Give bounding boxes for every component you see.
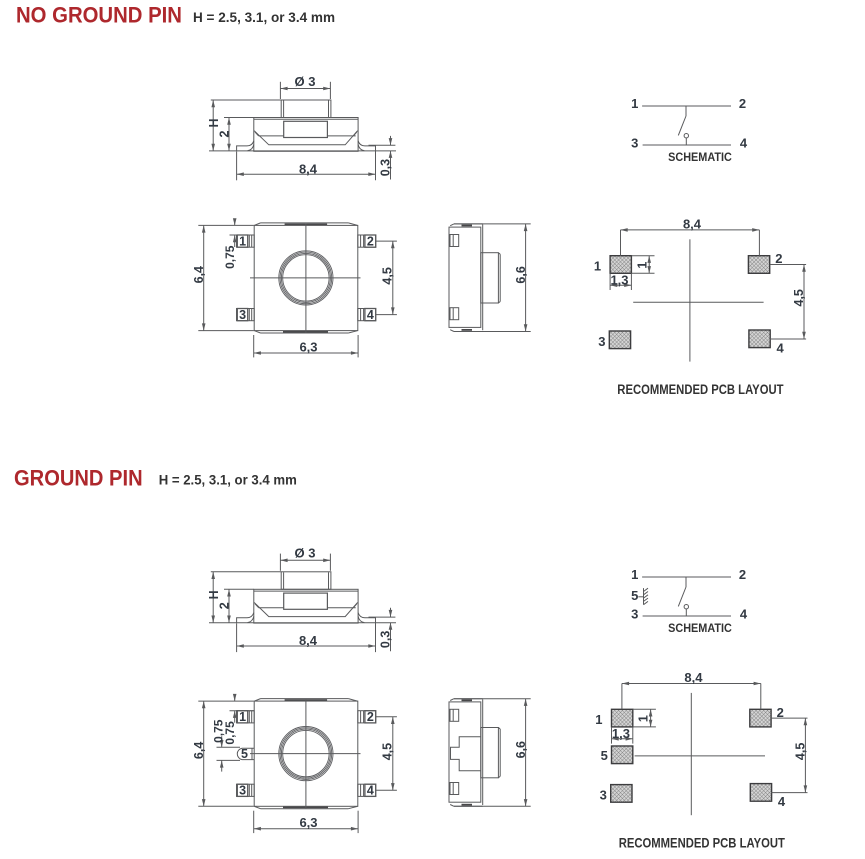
- svg-text:2: 2: [367, 710, 374, 724]
- svg-text:3: 3: [600, 787, 607, 802]
- svg-text:8,4: 8,4: [299, 161, 318, 176]
- svg-text:1,3: 1,3: [610, 273, 628, 288]
- svg-text:4,5: 4,5: [381, 267, 395, 284]
- svg-text:RECOMMENDED PCB LAYOUT: RECOMMENDED PCB LAYOUT: [617, 382, 784, 397]
- svg-text:H: H: [207, 118, 221, 127]
- svg-text:3: 3: [631, 135, 638, 150]
- svg-text:H = 2.5, 3.1, or 3.4 mm: H = 2.5, 3.1, or 3.4 mm: [159, 471, 297, 487]
- svg-text:4: 4: [776, 341, 784, 356]
- svg-text:4: 4: [367, 784, 374, 798]
- svg-text:H = 2.5, 3.1, or 3.4 mm: H = 2.5, 3.1, or 3.4 mm: [193, 9, 335, 25]
- svg-text:RECOMMENDED PCB LAYOUT: RECOMMENDED PCB LAYOUT: [619, 836, 786, 851]
- svg-text:3: 3: [239, 784, 246, 798]
- svg-text:NO GROUND PIN: NO GROUND PIN: [16, 3, 182, 28]
- svg-text:3: 3: [631, 606, 638, 621]
- svg-text:2: 2: [739, 96, 746, 111]
- svg-text:3: 3: [598, 334, 605, 349]
- svg-text:2: 2: [739, 567, 746, 582]
- svg-text:1: 1: [239, 234, 246, 248]
- svg-text:5: 5: [241, 747, 248, 761]
- svg-text:1: 1: [631, 96, 638, 111]
- svg-text:5: 5: [631, 588, 638, 603]
- svg-text:8,4: 8,4: [684, 670, 703, 685]
- svg-text:SCHEMATIC: SCHEMATIC: [668, 623, 732, 635]
- svg-text:Ø 3: Ø 3: [295, 546, 316, 561]
- svg-text:8,4: 8,4: [299, 633, 318, 648]
- svg-text:4,5: 4,5: [793, 743, 807, 760]
- svg-text:4: 4: [740, 135, 748, 150]
- svg-text:1: 1: [239, 710, 246, 724]
- svg-text:4,5: 4,5: [792, 289, 806, 306]
- svg-text:6,3: 6,3: [299, 339, 317, 354]
- svg-text:4: 4: [778, 794, 786, 809]
- svg-text:SCHEMATIC: SCHEMATIC: [668, 152, 732, 164]
- svg-text:2: 2: [218, 130, 232, 137]
- svg-text:6,6: 6,6: [514, 266, 528, 283]
- svg-text:6,6: 6,6: [514, 741, 528, 758]
- svg-text:Ø 3: Ø 3: [295, 74, 316, 89]
- svg-text:5: 5: [601, 748, 608, 763]
- svg-text:4: 4: [367, 308, 374, 322]
- svg-text:6,4: 6,4: [192, 742, 206, 759]
- svg-text:H: H: [207, 590, 221, 599]
- svg-text:2: 2: [367, 234, 374, 248]
- svg-text:GROUND PIN: GROUND PIN: [14, 465, 143, 490]
- svg-text:1: 1: [637, 715, 651, 722]
- svg-text:2: 2: [218, 602, 232, 609]
- svg-text:1: 1: [631, 567, 638, 582]
- svg-text:1: 1: [594, 258, 601, 273]
- svg-text:8,4: 8,4: [683, 217, 702, 232]
- svg-text:6,3: 6,3: [299, 815, 317, 830]
- svg-text:2: 2: [775, 251, 782, 266]
- svg-text:4,5: 4,5: [381, 743, 395, 760]
- svg-text:0,3: 0,3: [379, 631, 393, 648]
- svg-text:4: 4: [740, 606, 748, 621]
- svg-text:1,3: 1,3: [612, 726, 630, 741]
- svg-text:2: 2: [777, 705, 784, 720]
- svg-text:1: 1: [595, 712, 602, 727]
- svg-text:1: 1: [635, 262, 649, 269]
- svg-text:6,4: 6,4: [192, 266, 206, 283]
- svg-text:0,75: 0,75: [212, 719, 226, 743]
- svg-text:0,75: 0,75: [223, 245, 237, 269]
- svg-text:0,3: 0,3: [379, 159, 393, 176]
- svg-text:3: 3: [239, 308, 246, 322]
